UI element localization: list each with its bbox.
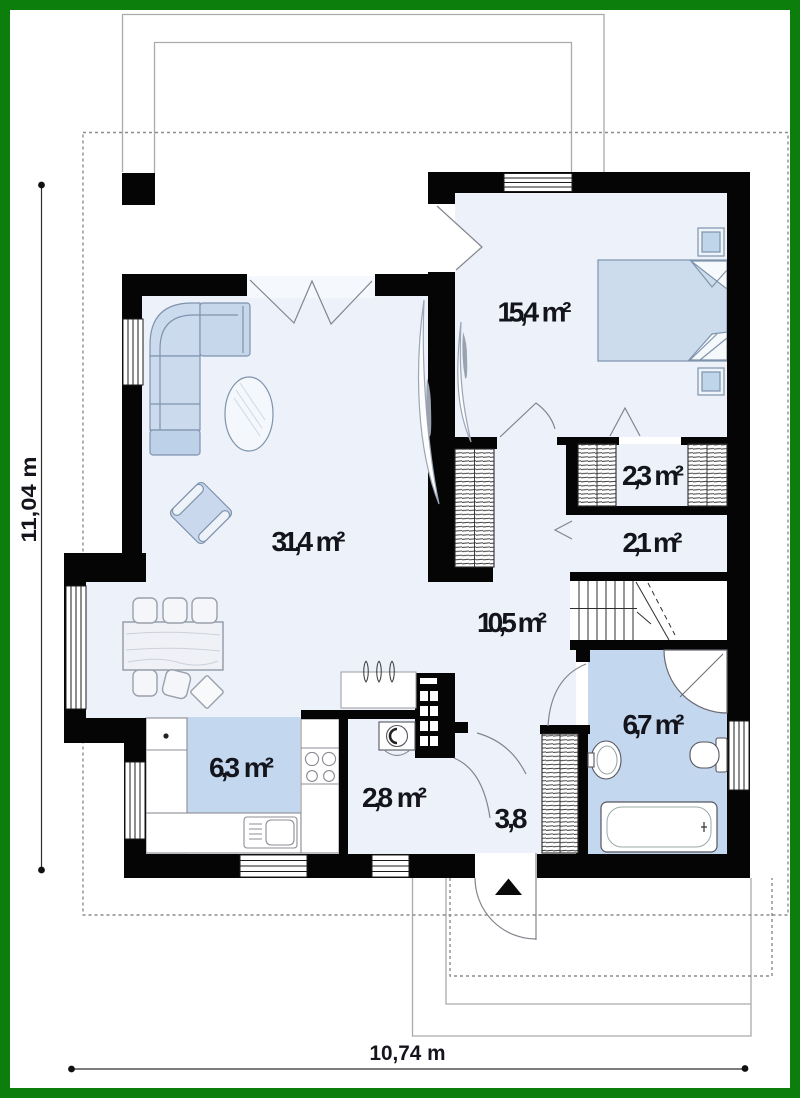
svg-text:31,4 m²: 31,4 m² — [272, 526, 346, 557]
svg-text:2,8 m²: 2,8 m² — [362, 782, 427, 813]
svg-text:6,3 m²: 6,3 m² — [209, 752, 274, 783]
svg-text:15,4 m²: 15,4 m² — [498, 297, 572, 328]
svg-text:10,74 m: 10,74 m — [370, 1042, 446, 1065]
svg-text:11,04 m: 11,04 m — [18, 457, 41, 543]
svg-text:6,7 m²: 6,7 m² — [623, 709, 685, 740]
svg-text:2,1 m²: 2,1 m² — [623, 527, 683, 558]
svg-text:2,3 m²: 2,3 m² — [622, 460, 684, 491]
svg-text:3,8: 3,8 — [495, 803, 528, 834]
svg-text:10,5 m²: 10,5 m² — [477, 607, 547, 638]
